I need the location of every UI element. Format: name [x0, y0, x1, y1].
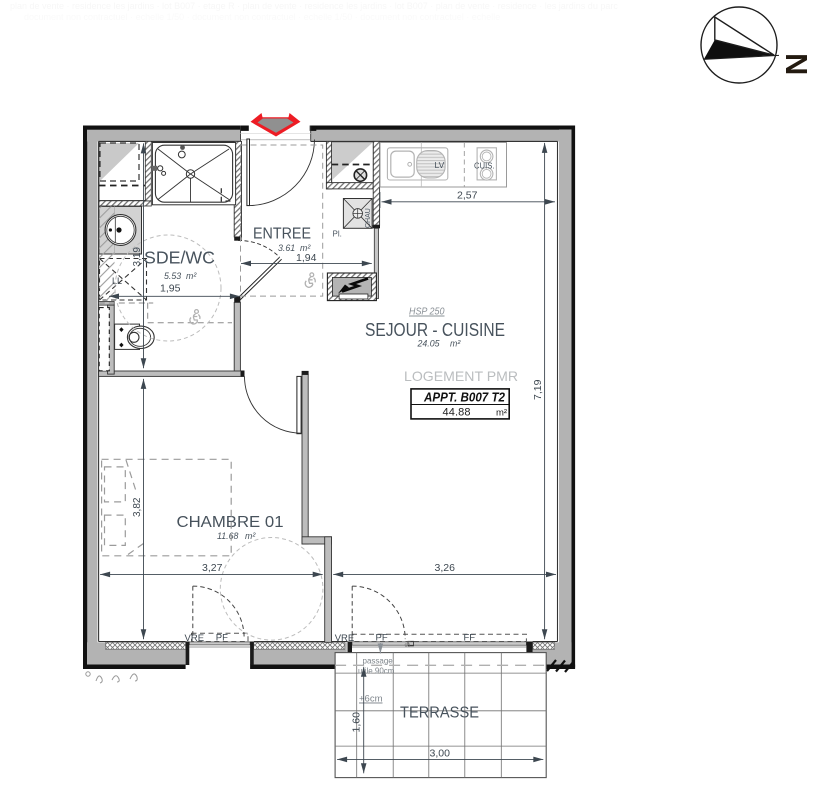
- svg-text:HSP 250: HSP 250: [409, 307, 445, 318]
- svg-text:+6cm: +6cm: [359, 694, 383, 705]
- svg-text:VRE: VRE: [335, 633, 355, 644]
- svg-text:24.05: 24.05: [417, 339, 440, 349]
- svg-text:passage: passage: [363, 657, 394, 666]
- svg-text:m²: m²: [496, 408, 507, 419]
- svg-text:SDE/WC: SDE/WC: [144, 248, 215, 268]
- svg-text:1,60: 1,60: [351, 712, 363, 733]
- svg-text:N: N: [779, 53, 814, 75]
- svg-text:3,26: 3,26: [435, 562, 456, 574]
- svg-text:CHAU: CHAU: [365, 208, 372, 228]
- svg-text:FF: FF: [464, 633, 476, 644]
- svg-text:TERRASSE: TERRASSE: [400, 705, 479, 722]
- svg-text:3.61: 3.61: [278, 243, 295, 253]
- svg-text:LOGEMENT PMR: LOGEMENT PMR: [404, 368, 518, 384]
- svg-text:plan de vente · residence les: plan de vente · residence les jardins · …: [10, 1, 618, 11]
- svg-text:44.88: 44.88: [443, 407, 471, 419]
- svg-text:PF: PF: [216, 633, 228, 644]
- svg-text:1,95: 1,95: [160, 283, 181, 295]
- svg-text:document non contractuel · ech: document non contractuel · echelle 1/50 …: [24, 12, 500, 22]
- svg-text:m²: m²: [186, 271, 197, 281]
- svg-text:3,27: 3,27: [202, 562, 223, 574]
- svg-text:ENTREE: ENTREE: [253, 226, 311, 243]
- svg-text:PF: PF: [376, 633, 388, 644]
- svg-text:LL: LL: [112, 276, 122, 286]
- svg-text:CUIS.: CUIS.: [474, 162, 495, 171]
- svg-text:VRE: VRE: [185, 633, 205, 644]
- svg-text:1,94: 1,94: [296, 252, 317, 264]
- svg-text:5.53: 5.53: [164, 271, 181, 281]
- svg-text:7,19: 7,19: [532, 379, 544, 400]
- svg-text:11.68: 11.68: [217, 531, 238, 541]
- svg-text:3,19: 3,19: [132, 247, 143, 267]
- svg-text:Pl.: Pl.: [333, 230, 342, 239]
- svg-text:APPT. B007 T2: APPT. B007 T2: [423, 390, 506, 405]
- svg-text:3,82: 3,82: [132, 497, 143, 517]
- svg-text:co: co: [405, 643, 411, 649]
- svg-text:CHAMBRE 01: CHAMBRE 01: [177, 514, 284, 531]
- svg-text:3,00: 3,00: [430, 748, 451, 760]
- svg-text:m²: m²: [450, 339, 461, 349]
- svg-text:2,57: 2,57: [457, 190, 478, 202]
- svg-text:SEJOUR - CUISINE: SEJOUR - CUISINE: [365, 320, 505, 340]
- svg-text:LV: LV: [435, 160, 445, 170]
- svg-text:m²: m²: [245, 531, 256, 541]
